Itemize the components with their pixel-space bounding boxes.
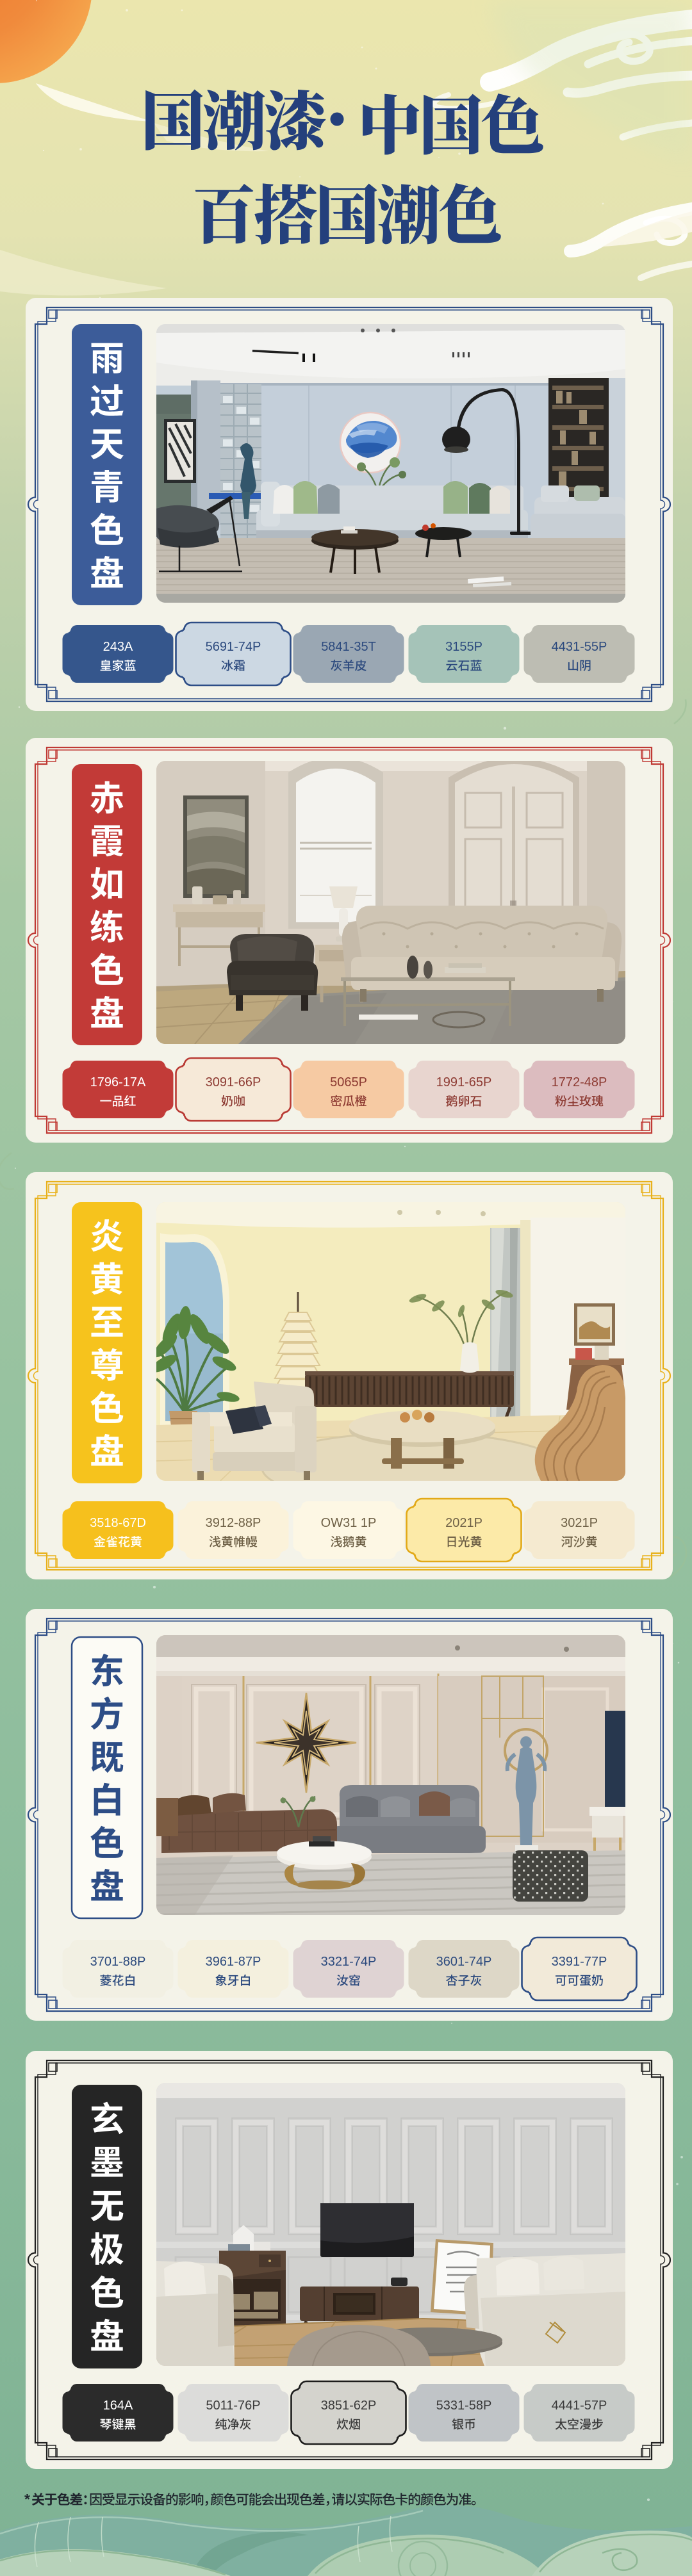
svg-text:1772-48P: 1772-48P — [552, 1075, 607, 1089]
svg-text:5691-74P: 5691-74P — [206, 640, 261, 654]
svg-text:3912-88P: 3912-88P — [206, 1516, 261, 1530]
svg-text:3021P: 3021P — [561, 1516, 598, 1530]
svg-text:5331-58P: 5331-58P — [436, 2399, 492, 2413]
svg-text:3601-74P: 3601-74P — [436, 1955, 492, 1969]
svg-text:3961-87P: 3961-87P — [206, 1955, 261, 1969]
svg-text:1991-65P: 1991-65P — [436, 1075, 492, 1089]
svg-text:1796-17A: 1796-17A — [90, 1075, 146, 1089]
svg-text:*: * — [24, 2491, 30, 2507]
svg-text:3321-74P: 3321-74P — [321, 1955, 377, 1969]
svg-text:3701-88P: 3701-88P — [90, 1955, 146, 1969]
svg-text:4431-55P: 4431-55P — [552, 640, 607, 654]
svg-text:3391-77P: 3391-77P — [552, 1955, 607, 1969]
svg-text:5065P: 5065P — [330, 1075, 367, 1089]
svg-text:164A: 164A — [103, 2399, 133, 2413]
svg-text:4441-57P: 4441-57P — [552, 2399, 607, 2413]
svg-text:5011-76P: 5011-76P — [206, 2399, 260, 2413]
svg-text:2021P: 2021P — [445, 1516, 482, 1530]
svg-text:3851-62P: 3851-62P — [321, 2399, 377, 2413]
svg-text:243A: 243A — [103, 640, 133, 654]
svg-text:3091-66P: 3091-66P — [206, 1075, 261, 1089]
svg-text:3155P: 3155P — [445, 640, 482, 654]
svg-text:3518-67D: 3518-67D — [90, 1516, 146, 1530]
svg-text:OW31 1P: OW31 1P — [321, 1516, 377, 1530]
svg-text:5841-35T: 5841-35T — [321, 640, 376, 654]
